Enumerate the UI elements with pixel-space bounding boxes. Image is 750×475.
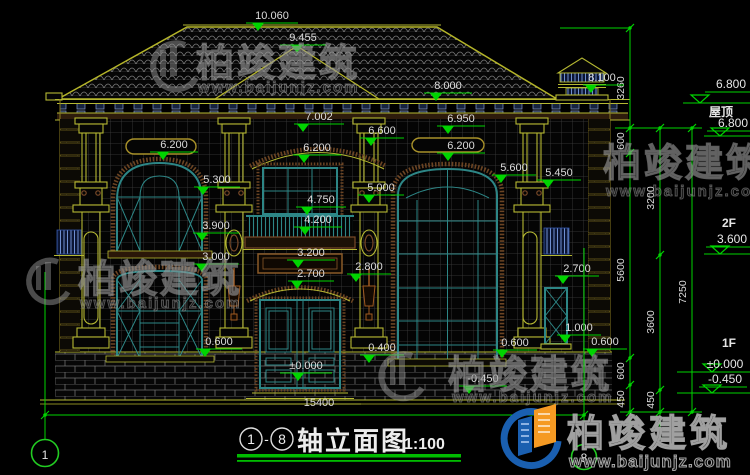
logo-brand-text: 柏竣建筑 (567, 412, 731, 454)
svg-text:6.950: 6.950 (447, 113, 475, 125)
total-width-dim: 15400 (304, 397, 335, 409)
svg-text:0.600: 0.600 (591, 336, 619, 348)
svg-text:6.200: 6.200 (303, 142, 331, 154)
watermark-site: www.baijunjz.com (451, 389, 613, 406)
svg-text:-0.450: -0.450 (708, 372, 742, 386)
svg-text:2F: 2F (722, 216, 736, 230)
svg-text:5.600: 5.600 (500, 162, 528, 174)
svg-text:6.800: 6.800 (716, 77, 746, 91)
svg-text:3.200: 3.200 (297, 247, 325, 259)
svg-text:7.002: 7.002 (305, 111, 333, 123)
svg-text:6.200: 6.200 (160, 139, 188, 151)
watermark-right: 柏竣建筑 www.baijunjz.com (603, 143, 750, 200)
chain-dimension-value: 450 (615, 390, 627, 408)
svg-text:4.200: 4.200 (304, 214, 332, 226)
svg-text:6.200: 6.200 (447, 140, 475, 152)
svg-text:4.750: 4.750 (307, 194, 335, 206)
svg-text:8.100: 8.100 (588, 72, 616, 84)
title-axis-end: 8 (278, 431, 286, 447)
svg-text:0.400: 0.400 (368, 342, 396, 354)
chain-dimension-value: 600 (615, 362, 627, 380)
axis-number-1: 1 (42, 448, 49, 462)
chain-dimension-value: 450 (645, 391, 657, 409)
svg-text:2.800: 2.800 (355, 261, 383, 273)
svg-text:3.600: 3.600 (717, 232, 747, 246)
watermark-site: www.baijunjz.com (197, 79, 359, 96)
title-underline-thick (237, 454, 461, 458)
svg-text:1.000: 1.000 (565, 322, 593, 334)
right-louver-vent (541, 228, 572, 256)
chain-dimension-value: 3600 (645, 310, 657, 334)
balcony (243, 216, 357, 250)
floor-level-marker: 1F (722, 336, 736, 350)
watermark-site: www.baijunjz.com (79, 295, 241, 312)
elevation-drawing-canvas: 15400 1 32606005600600450320036004507250… (0, 0, 750, 475)
title-underline-thin (237, 460, 461, 462)
title-axis-start: 1 (247, 431, 255, 447)
svg-text:5.000: 5.000 (367, 182, 395, 194)
svg-text:6.800: 6.800 (718, 116, 748, 130)
svg-text:6.600: 6.600 (368, 125, 396, 137)
svg-text:±0.000: ±0.000 (289, 360, 323, 372)
watermark-site: www.baijunjz.com (605, 183, 750, 200)
left-louver-vent (54, 230, 84, 256)
svg-text:5.450: 5.450 (545, 167, 573, 179)
chain-dimension-value: 5600 (615, 258, 627, 282)
svg-text:3.900: 3.900 (202, 220, 230, 232)
drawing-title: 轴立面图 (297, 426, 409, 456)
svg-text:10.060: 10.060 (255, 10, 289, 22)
watermark-brand: 柏竣建筑 (603, 143, 750, 185)
svg-text:8.000: 8.000 (434, 80, 462, 92)
svg-text:0.600: 0.600 (501, 337, 529, 349)
cad-elevation-screenshot: 15400 1 32606005600600450320036004507250… (0, 0, 750, 475)
svg-text:2.700: 2.700 (563, 263, 591, 275)
svg-text:±0.000: ±0.000 (707, 357, 744, 371)
svg-text:5.300: 5.300 (203, 174, 231, 186)
chain-dimension-value: 3260 (615, 76, 627, 100)
drawing-scale: 1:100 (404, 436, 445, 453)
title-separator: - (264, 431, 269, 447)
logo-site-text: www.baijunjz.com (568, 452, 732, 471)
svg-text:2.700: 2.700 (297, 268, 325, 280)
chain-dimension-value: 7250 (677, 280, 689, 304)
svg-text:0.600: 0.600 (205, 336, 233, 348)
svg-text:1F: 1F (722, 336, 736, 350)
